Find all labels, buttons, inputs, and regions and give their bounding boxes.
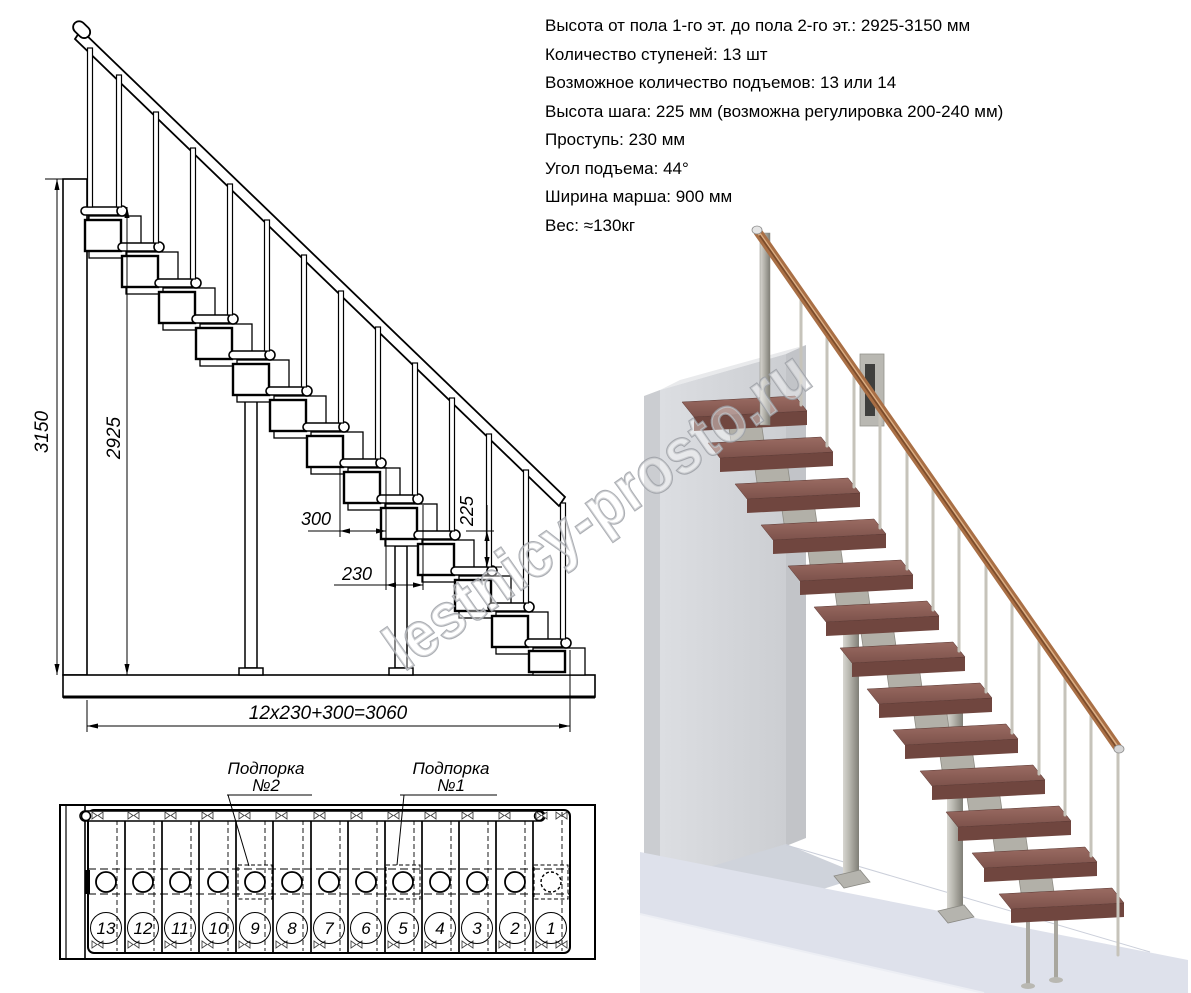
- upper-floor-wall: [63, 179, 87, 675]
- render-3d: [640, 226, 1188, 993]
- spec-angle: Угол подъема: 44°: [545, 155, 1185, 184]
- side-elevation-drawing: 3150 2925 300 230 225 12x230+300=3060: [32, 19, 595, 732]
- spec-floor-height: Высота от пола 1-го эт. до пола 2-го эт.…: [545, 12, 1185, 41]
- support-column-step9: [239, 400, 263, 675]
- tread-3d: [972, 847, 1097, 882]
- svg-text:1: 1: [546, 919, 555, 938]
- step-number-2: 2: [500, 913, 531, 944]
- svg-text:12: 12: [134, 919, 153, 938]
- svg-text:9: 9: [250, 919, 260, 938]
- svg-text:13: 13: [97, 919, 116, 938]
- tread-3d: [840, 642, 965, 677]
- plan-module-circles: [96, 872, 561, 892]
- tread-3d: [735, 478, 860, 513]
- svg-text:3: 3: [472, 919, 482, 938]
- svg-text:№1: №1: [437, 776, 465, 795]
- tread-3d: [893, 724, 1018, 759]
- dim-label-225: 225: [457, 495, 477, 527]
- blueprint-canvas: 3150 2925 300 230 225 12x230+300=3060: [0, 0, 1191, 993]
- spec-weight: Вес: ≈130кг: [545, 212, 1185, 241]
- dim-label-230: 230: [341, 564, 372, 584]
- svg-text:6: 6: [361, 919, 371, 938]
- svg-text:11: 11: [171, 919, 189, 938]
- dim-label-300: 300: [301, 509, 331, 529]
- spec-step-height: Высота шага: 225 мм (возможна регулировк…: [545, 98, 1185, 127]
- handrail-end-cap: [1114, 745, 1124, 753]
- svg-text:7: 7: [324, 919, 334, 938]
- svg-text:10: 10: [209, 919, 228, 938]
- plan-handrail-bar: [80, 811, 545, 821]
- dim-label-2925: 2925: [104, 416, 125, 460]
- step-number-10: 10: [203, 913, 234, 944]
- dim-label-total: 12x230+300=3060: [249, 703, 408, 724]
- tread-3d: [814, 601, 939, 636]
- spec-width: Ширина марша: 900 мм: [545, 183, 1185, 212]
- spec-step-count: Количество ступеней: 13 шт: [545, 41, 1185, 70]
- tread-3d: [946, 806, 1071, 841]
- step-number-9: 9: [240, 913, 271, 944]
- tread-3d: [761, 519, 886, 554]
- svg-text:5: 5: [398, 919, 408, 938]
- plan-view-drawing: 13 12 11 10 9 8 7 6 5 4 3 2 1 Подпорка №…: [60, 759, 595, 959]
- svg-text:2: 2: [509, 919, 520, 938]
- dim-label-3150: 3150: [32, 410, 53, 453]
- svg-text:4: 4: [435, 919, 444, 938]
- svg-text:№2: №2: [252, 776, 280, 795]
- tread-3d: [999, 888, 1124, 923]
- tread-3d: [788, 560, 913, 595]
- tread-3d: [867, 683, 992, 718]
- specifications: Высота от пола 1-го эт. до пола 2-го эт.…: [545, 12, 1185, 240]
- spec-tread-depth: Проступь: 230 мм: [545, 126, 1185, 155]
- tread-3d: [920, 765, 1045, 800]
- tread-module-1: [525, 638, 585, 675]
- svg-text:8: 8: [287, 919, 297, 938]
- support-plate-step9: [238, 865, 272, 899]
- floor-base-plate: [63, 675, 595, 697]
- spec-rise-count: Возможное количество подъемов: 13 или 14: [545, 69, 1185, 98]
